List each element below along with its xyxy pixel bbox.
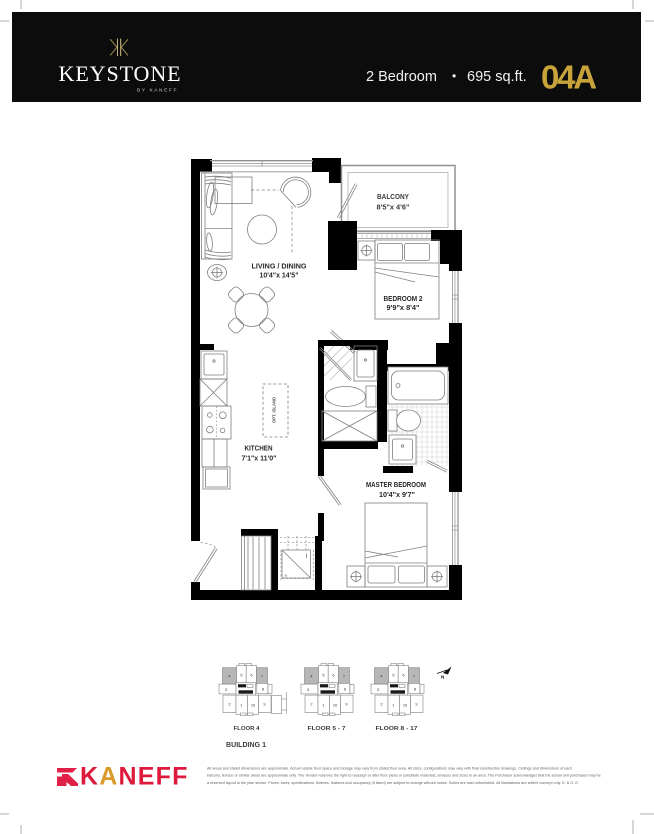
svg-text:7'1"x 11'0": 7'1"x 11'0" [242, 454, 277, 463]
svg-text:9'9"x 8'4": 9'9"x 8'4" [387, 303, 420, 312]
svg-text:All areas and stated dimension: All areas and stated dimensions are appr… [207, 767, 572, 771]
svg-text:FLOOR 5 - 7: FLOOR 5 - 7 [308, 726, 346, 732]
svg-text:KEYSTONE: KEYSTONE [59, 61, 182, 86]
svg-text:BALCONY: BALCONY [377, 194, 409, 201]
svg-text:04A: 04A [541, 59, 596, 96]
svg-text:FLOOR 8 - 17: FLOOR 8 - 17 [376, 726, 418, 732]
svg-text:KITCHEN: KITCHEN [245, 444, 273, 453]
svg-text:FLOOR 4: FLOOR 4 [234, 726, 261, 732]
svg-text:8'5"x 4'6": 8'5"x 4'6" [377, 205, 410, 212]
svg-text:a reversed layout to the plan: a reversed layout to the plan shown. Pri… [207, 781, 579, 785]
svg-text:BEDROOM 2: BEDROOM 2 [384, 294, 423, 303]
svg-text:10'4"x 14'5": 10'4"x 14'5" [260, 271, 299, 280]
svg-text:BUILDING 1: BUILDING 1 [226, 740, 266, 749]
svg-text:OPT. ISLAND: OPT. ISLAND [272, 397, 277, 423]
svg-text:2 Bedroom: 2 Bedroom [366, 69, 437, 85]
svg-text:KANEFF: KANEFF [80, 763, 189, 791]
svg-text:LIVING / DINING: LIVING / DINING [252, 262, 307, 271]
svg-text:•: • [452, 69, 456, 83]
svg-text:10'4"x 9'7": 10'4"x 9'7" [379, 490, 415, 499]
svg-text:R: R [285, 573, 288, 578]
svg-text:N: N [441, 675, 445, 680]
svg-text:MASTER BEDROOM: MASTER BEDROOM [366, 480, 426, 489]
svg-text:BY KANEFF: BY KANEFF [137, 88, 178, 94]
svg-text:695 sq.ft.: 695 sq.ft. [467, 69, 527, 85]
svg-text:balcony, terrace or similar ar: balcony, terrace or similar areas are ap… [207, 774, 601, 778]
